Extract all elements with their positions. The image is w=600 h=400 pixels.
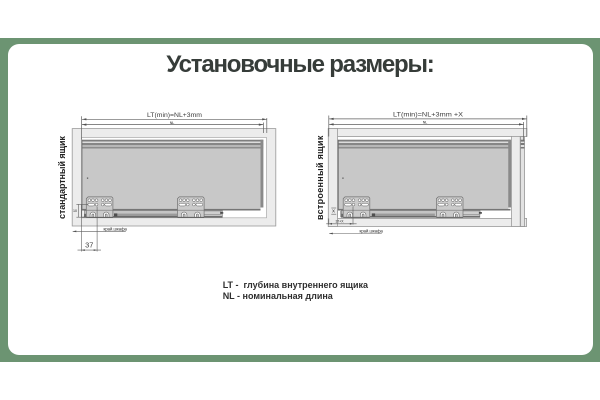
svg-text:край.шкафа: край.шкафа — [360, 228, 384, 233]
svg-text:37: 37 — [85, 240, 93, 249]
svg-text:NL: NL — [170, 121, 175, 125]
svg-text:37+X: 37+X — [335, 219, 344, 223]
svg-text:край.шкафа: край.шкафа — [104, 227, 128, 232]
svg-text:LT(min)=NL+3mm +X: LT(min)=NL+3mm +X — [393, 112, 463, 119]
svg-text:NL: NL — [423, 121, 428, 125]
svg-text:10: 10 — [73, 209, 77, 213]
svg-text:LT(min)=NL+3mm: LT(min)=NL+3mm — [147, 112, 202, 119]
svg-text:X: X — [332, 208, 335, 213]
